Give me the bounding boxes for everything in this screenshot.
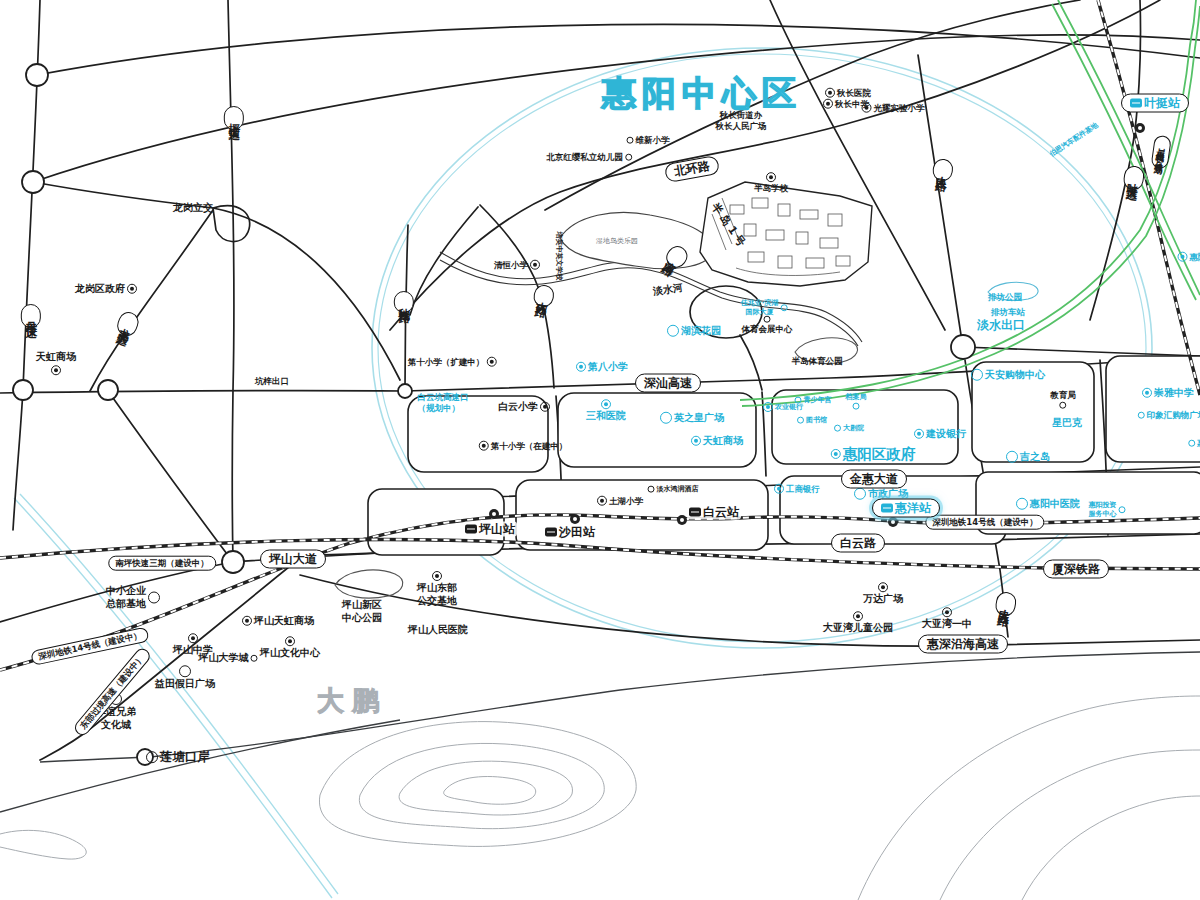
sanhe-hospital-text: 三和医院 bbox=[586, 410, 626, 423]
guangyao-experimental-primary-text: 光耀实验小学 bbox=[874, 103, 925, 114]
pill-nanping-expressway-3: 南坪快速三期（建设中） bbox=[108, 556, 216, 571]
sports-expo-center: 体育会展中心 bbox=[742, 316, 793, 335]
gov-icon bbox=[831, 449, 841, 459]
starbucks: 星巴克 bbox=[1052, 417, 1082, 430]
agricultural-bank: 农业银行 bbox=[763, 402, 803, 412]
chongya-middle-school: 崇雅中学 bbox=[1142, 387, 1194, 400]
pill-baiyun-road-text: 白云路 bbox=[840, 536, 876, 551]
pingshan-university-town: 坪山大学城 bbox=[199, 652, 258, 665]
baiyun-primary-school: 白云小学 bbox=[498, 401, 550, 414]
pill-baiyun-road: 白云路 bbox=[831, 534, 885, 553]
shatian-station-text: 沙田站 bbox=[559, 525, 595, 540]
shop-icon bbox=[878, 582, 888, 592]
huiyang-district-gov-text: 惠阳区政府 bbox=[843, 445, 916, 463]
pingshan-new-district-central-park-text: 坪山新区 中心公园 bbox=[342, 599, 382, 624]
tuhu-primary-school: 土湖小学 bbox=[597, 496, 643, 507]
huiyang-station-text: 惠洋站 bbox=[895, 501, 931, 516]
school-icon bbox=[766, 172, 776, 182]
no8-primary-school: 第八小学 bbox=[576, 361, 628, 374]
pill-pingshan-ave-north: 坪山大道 bbox=[224, 106, 244, 130]
no10-primary-expansion: 第十小学（扩建中） bbox=[408, 357, 497, 368]
school-icon bbox=[540, 402, 550, 412]
huiyang-tcm-hospital-text: 惠阳中医院 bbox=[1030, 498, 1080, 511]
sme-headquarters-base: 中小企业 总部基地 bbox=[106, 585, 160, 610]
pill-danping-expressway-text: 丹平快速 bbox=[24, 312, 38, 320]
tianhong-mall-danshui: 天虹商场 bbox=[691, 435, 743, 448]
baiyun-primary-school-text: 白云小学 bbox=[498, 401, 538, 414]
pill-neihuan-road-text: 内环路 bbox=[536, 292, 551, 301]
qiuchang-subdistrict-office: 秋长街道办 秋长人民广场 bbox=[716, 110, 767, 131]
school-icon bbox=[530, 260, 540, 270]
liantang-port: 莲塘口岸 bbox=[146, 749, 210, 765]
jusco-text: 吉之岛 bbox=[1020, 451, 1050, 464]
yingzhihuang-plaza-text: 英之皇广场 bbox=[674, 412, 724, 425]
pill-pingshan-ave-south-text: 坪山大道 bbox=[269, 552, 317, 567]
pill-binhe-road-text: 滨河路 bbox=[669, 250, 684, 263]
poi-circle-icon bbox=[1016, 498, 1028, 510]
school-icon bbox=[479, 441, 489, 451]
dayabay-no1-middle-school: 大亚湾一中 bbox=[922, 607, 972, 631]
huiyang-tcm-hospital: 惠阳中医院 bbox=[1016, 498, 1080, 511]
pill-qiuhu-road: 秋湖路 bbox=[394, 291, 414, 313]
weixin-primary-school-text: 维新小学 bbox=[636, 135, 670, 146]
dot-icon bbox=[251, 655, 258, 662]
icbc-bank: 工商银行 bbox=[774, 484, 820, 495]
sme-headquarters-base-text: 中小企业 总部基地 bbox=[106, 585, 146, 610]
hospital-icon bbox=[825, 88, 835, 98]
archives-bureau-text: 档案局 bbox=[846, 393, 867, 402]
pill-pingshan-ave-north-text: 坪山大道 bbox=[227, 114, 241, 122]
train-icon bbox=[881, 504, 893, 513]
gov-icon bbox=[127, 284, 137, 294]
school-icon bbox=[823, 99, 833, 109]
no10-primary-expansion-text: 第十小学（扩建中） bbox=[408, 357, 485, 368]
peiying-bilingual-school: 培英中英文学校 bbox=[555, 232, 564, 281]
pingshan-peoples-hospital: 坪山人民医院 bbox=[408, 624, 468, 637]
jiazhaoye-tower-text: 佳兆业·滨湖 国际大厦 bbox=[741, 299, 779, 317]
danshui-exit-text: 淡水出口 bbox=[977, 318, 1025, 333]
pingshan-culture-center: 坪山文化中心 bbox=[260, 636, 320, 660]
shatian-station: 沙田站 bbox=[543, 525, 597, 540]
beijing-hongying-kindergarten-text: 北京红缨私立幼儿园 bbox=[546, 152, 623, 163]
baiyun-station-text: 白云站 bbox=[703, 505, 739, 520]
pill-metro14-east: 深圳地铁14号线（建设中） bbox=[925, 515, 1044, 530]
poi-circle-icon bbox=[148, 591, 160, 603]
school-icon bbox=[1178, 252, 1188, 262]
pill-jinhui-avenue-text: 金惠大道 bbox=[850, 472, 898, 487]
paifang-bus-station: 排坊车站 bbox=[991, 307, 1025, 318]
wetland-bird-park-text: 湿地鸟类乐园 bbox=[596, 237, 638, 246]
construction-bank: 建设银行 bbox=[914, 428, 966, 441]
huiyang-partial-label-ne: 惠阳 bbox=[1178, 252, 1200, 263]
dot-icon bbox=[834, 425, 841, 432]
jusco: 吉之岛 bbox=[1006, 451, 1050, 464]
hubin-garden: 湖滨花园 bbox=[667, 325, 721, 338]
no8-primary-school-text: 第八小学 bbox=[588, 361, 628, 374]
yinxianghui-shopping-plaza-text: 印象汇购物广场 bbox=[1147, 410, 1200, 421]
shop-icon bbox=[242, 616, 252, 626]
poi-circle-icon bbox=[179, 665, 191, 677]
train-icon bbox=[465, 525, 477, 534]
wanda-plaza-text: 万达广场 bbox=[863, 593, 903, 606]
kengzi-exit: 坑梓出口 bbox=[255, 376, 289, 387]
pill-xiashen-railway-text: 厦深铁路 bbox=[1052, 562, 1100, 577]
pingshan-east-bus-base: 坪山东部 公交基地 bbox=[417, 571, 457, 607]
dot-icon bbox=[797, 417, 804, 424]
pingshan-peoples-hospital-text: 坪山人民医院 bbox=[408, 624, 468, 637]
danshui-exit: 淡水出口 bbox=[977, 318, 1025, 333]
dot-icon bbox=[853, 402, 860, 409]
train-icon bbox=[545, 528, 557, 537]
tianan-shopping-center-text: 天安购物中心 bbox=[985, 369, 1045, 382]
bank-icon bbox=[914, 429, 924, 439]
paifang-bus-station-text: 排坊车站 bbox=[991, 307, 1025, 318]
pill-jinhui-avenue: 金惠大道 bbox=[841, 470, 907, 489]
no10-primary-construction: 第十小学（在建中） bbox=[479, 441, 568, 452]
guangyao-experimental-primary: 光耀实验小学 bbox=[862, 103, 925, 114]
pill-danping-expressway: 丹平快速 bbox=[21, 304, 41, 328]
longgang-interchange-text: 龙岗立交 bbox=[173, 202, 213, 215]
education-bureau-text: 教育局 bbox=[1050, 390, 1076, 401]
pill-shenshan-expressway-text: 深汕高速 bbox=[644, 376, 692, 391]
huiyang-station: 惠洋站 bbox=[872, 499, 940, 518]
grand-theater: 大剧院 bbox=[834, 424, 864, 433]
pingshan-university-town-text: 坪山大学城 bbox=[199, 652, 249, 665]
agricultural-bank-text: 农业银行 bbox=[775, 403, 803, 412]
beijing-hongying-kindergarten: 北京红缨私立幼儿园 bbox=[546, 152, 632, 163]
kengzi-exit-text: 坑梓出口 bbox=[255, 376, 289, 387]
school-icon bbox=[597, 496, 607, 506]
paifang-park-text: 排坊公园 bbox=[988, 292, 1022, 303]
tianhong-mall-longgang: 天虹商场 bbox=[36, 351, 76, 375]
pingshan-station-text: 坪山站 bbox=[479, 522, 515, 537]
dot-icon bbox=[1060, 401, 1067, 408]
dayabay-children-park-text: 大亚湾儿童公园 bbox=[823, 622, 893, 635]
library-text: 图书馆 bbox=[806, 416, 827, 425]
dot-icon bbox=[1138, 412, 1145, 419]
longgang-district-gov-text: 龙岗区政府 bbox=[75, 283, 125, 296]
tianhong-mall-danshui-text: 天虹商场 bbox=[703, 435, 743, 448]
baiyunkeng-expressway-exit-text: 白云坑高速口 （规划中） bbox=[418, 392, 469, 413]
gov-icon bbox=[853, 611, 863, 621]
yeting-station-text: 叶挺站 bbox=[1144, 96, 1180, 111]
bandao-school-text: 半岛学校 bbox=[754, 183, 788, 194]
bandao-sports-park-text: 半岛体育公园 bbox=[792, 356, 843, 367]
longgang-interchange: 龙岗立交 bbox=[173, 202, 213, 215]
qingheng-primary-school-text: 清恒小学 bbox=[494, 260, 528, 271]
qiuchang-hospital-text: 秋长医院 bbox=[837, 88, 871, 99]
sanhe-hospital: 三和医院 bbox=[586, 399, 626, 423]
poi-circle-icon bbox=[146, 751, 158, 763]
weixin-primary-school: 维新小学 bbox=[627, 135, 670, 146]
peiying-bilingual-school-text: 培英中英文学校 bbox=[555, 232, 564, 281]
dot-icon bbox=[1119, 507, 1126, 514]
pill-metro14-east-text: 深圳地铁14号线（建设中） bbox=[932, 517, 1037, 528]
bus-icon bbox=[432, 571, 442, 581]
school-icon bbox=[486, 357, 496, 367]
bank-icon bbox=[763, 402, 773, 412]
dapeng-area: 大鹏 bbox=[317, 684, 387, 718]
huiyang-investment-service-center-text: 惠阳投资 服务中心 bbox=[1089, 501, 1117, 519]
no10-primary-construction-text: 第十小学（在建中） bbox=[491, 441, 568, 452]
liantang-port-text: 莲塘口岸 bbox=[160, 749, 210, 765]
pingshan-tianhong-mall: 坪山天虹商场 bbox=[242, 615, 314, 628]
gov-icon bbox=[285, 636, 295, 646]
bandao-school: 半岛学校 bbox=[754, 172, 788, 194]
huiyang-district-gov: 惠阳区政府 bbox=[831, 445, 916, 463]
danshui-hotel-text: 淡水鸿润酒店 bbox=[657, 485, 699, 494]
pill-huizhou-rail-line1-text: 惠州城轨1号线（规划） bbox=[1155, 143, 1168, 161]
school-icon bbox=[1142, 388, 1152, 398]
pill-renmin-road-text: 人民路 bbox=[935, 166, 950, 174]
bandao-sports-park: 半岛体育公园 bbox=[792, 356, 843, 367]
school-icon bbox=[188, 633, 198, 643]
pingshan-east-bus-base-text: 坪山东部 公交基地 bbox=[417, 582, 457, 607]
pingshan-culture-center-text: 坪山文化中心 bbox=[260, 647, 320, 660]
archives-bureau: 档案局 bbox=[846, 393, 867, 410]
yinxianghui-shopping-plaza: 印象汇购物广场 bbox=[1138, 410, 1200, 421]
pill-shenshan-expressway: 深汕高速 bbox=[635, 374, 701, 393]
longgang-district-gov: 龙岗区政府 bbox=[75, 283, 137, 296]
map-canvas: 惠阳中心区 坪山大道丹平快速龙岗大道北环路人民路秋湖路内环路滨河路深汕高速金惠大… bbox=[0, 0, 1200, 900]
huiyang-partial-label-e: 惠 bbox=[1188, 438, 1200, 449]
poi-circle-icon bbox=[971, 369, 983, 381]
school-icon bbox=[862, 103, 872, 113]
wanda-plaza: 万达广场 bbox=[863, 582, 903, 606]
tianan-shopping-center: 天安购物中心 bbox=[971, 369, 1045, 382]
hubin-garden-text: 湖滨花园 bbox=[681, 325, 721, 338]
school-icon bbox=[942, 607, 952, 617]
dot-icon bbox=[627, 137, 634, 144]
tianhong-mall-longgang-text: 天虹商场 bbox=[36, 351, 76, 364]
qingheng-primary-school: 清恒小学 bbox=[494, 260, 540, 271]
baiyunkeng-expressway-exit: 白云坑高速口 （规划中） bbox=[418, 392, 469, 413]
dot-icon bbox=[1188, 440, 1195, 447]
pill-renmin-5th-road-text: 人民五路 bbox=[998, 599, 1014, 609]
pill-huishen-coastal-expressway-text: 惠深沿海高速 bbox=[927, 637, 999, 652]
dayabay-children-park: 大亚湾儿童公园 bbox=[823, 611, 893, 635]
pill-yeting-avenue-text: 叶挺大道 bbox=[1126, 173, 1141, 183]
baiyun-station: 白云站 bbox=[687, 505, 741, 520]
train-icon bbox=[1130, 99, 1142, 108]
yitian-holiday-plaza-text: 益田假日广场 bbox=[155, 678, 215, 691]
icbc-bank-text: 工商银行 bbox=[786, 484, 820, 495]
qiuchang-subdistrict-office-text: 秋长街道办 秋长人民广场 bbox=[716, 110, 767, 131]
dayabay-no1-middle-school-text: 大亚湾一中 bbox=[922, 618, 972, 631]
pingshan-new-district-central-park: 坪山新区 中心公园 bbox=[342, 599, 382, 624]
shop-icon bbox=[691, 436, 701, 446]
pill-huishen-coastal-expressway: 惠深沿海高速 bbox=[918, 635, 1008, 654]
education-bureau: 教育局 bbox=[1050, 390, 1076, 409]
shop-icon bbox=[51, 365, 61, 375]
pingshan-station: 坪山站 bbox=[463, 522, 517, 537]
pill-longgang-avenue-text: 龙岗大道 bbox=[120, 318, 136, 330]
bank-icon bbox=[774, 484, 784, 494]
pingshan-tianhong-mall-text: 坪山天虹商场 bbox=[254, 615, 314, 628]
district-title: 惠阳中心区 bbox=[602, 72, 802, 115]
sports-expo-center-text: 体育会展中心 bbox=[742, 324, 793, 335]
school-icon bbox=[576, 362, 586, 372]
qiuchang-hospital: 秋长医院 bbox=[825, 88, 871, 99]
chongya-middle-school-text: 崇雅中学 bbox=[1154, 387, 1194, 400]
paifang-park: 排坊公园 bbox=[988, 292, 1022, 303]
huiyang-partial-label-ne-text: 惠阳 bbox=[1190, 252, 1200, 263]
poi-circle-icon bbox=[1006, 451, 1018, 463]
dot-icon bbox=[780, 305, 787, 312]
dapeng-area-text: 大鹏 bbox=[317, 684, 387, 718]
poi-circle-icon bbox=[667, 325, 679, 337]
tuhu-primary-school-text: 土湖小学 bbox=[609, 496, 643, 507]
youth-palace-text: 青少年宫 bbox=[804, 396, 832, 405]
poi-circle-icon bbox=[854, 488, 866, 500]
train-icon bbox=[689, 508, 701, 517]
danshui-hotel: 淡水鸿润酒店 bbox=[648, 485, 699, 494]
pill-pingshan-ave-south: 坪山大道 bbox=[260, 550, 326, 569]
jiazhaoye-tower: 佳兆业·滨湖 国际大厦 bbox=[741, 299, 788, 317]
pill-nanping-expressway-3-text: 南坪快速三期（建设中） bbox=[115, 558, 209, 569]
library: 图书馆 bbox=[797, 416, 827, 425]
starbucks-text: 星巴克 bbox=[1052, 417, 1082, 430]
pill-qiuhu-road-text: 秋湖路 bbox=[397, 299, 411, 305]
huiyang-investment-service-center: 惠阳投资 服务中心 bbox=[1089, 501, 1126, 519]
yingzhihuang-plaza: 英之皇广场 bbox=[660, 412, 724, 425]
pill-xiashen-railway: 厦深铁路 bbox=[1043, 560, 1109, 579]
wetland-bird-park: 湿地鸟类乐园 bbox=[596, 237, 638, 246]
district-title-text: 惠阳中心区 bbox=[602, 72, 802, 115]
yeting-station: 叶挺站 bbox=[1121, 94, 1189, 113]
contours bbox=[0, 696, 1200, 900]
grand-theater-text: 大剧院 bbox=[843, 424, 864, 433]
dot-icon bbox=[625, 154, 632, 161]
hospital-icon bbox=[601, 399, 611, 409]
poi-circle-icon bbox=[660, 412, 672, 424]
construction-bank-text: 建设银行 bbox=[926, 428, 966, 441]
dot-icon bbox=[648, 486, 655, 493]
yitian-holiday-plaza: 益田假日广场 bbox=[155, 665, 215, 691]
